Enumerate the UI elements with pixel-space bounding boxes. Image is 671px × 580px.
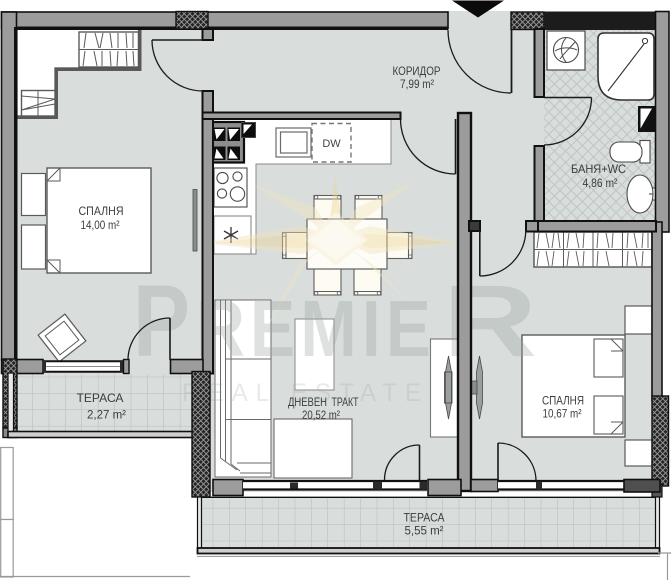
- svg-text:20,52 m²: 20,52 m²: [302, 408, 340, 422]
- svg-text:7,99 m²: 7,99 m²: [400, 77, 434, 91]
- svg-text:СПАЛНЯ: СПАЛНЯ: [79, 204, 124, 218]
- svg-text:4,86 m²: 4,86 m²: [583, 176, 618, 190]
- svg-text:ДНЕВЕН: ДНЕВЕН: [288, 395, 327, 409]
- svg-text:ТРАКТ: ТРАКТ: [332, 395, 359, 409]
- svg-text:2,27 m²: 2,27 m²: [87, 408, 126, 422]
- svg-text:14,00 m²: 14,00 m²: [81, 218, 120, 232]
- svg-text:ТЕРАСА: ТЕРАСА: [404, 511, 445, 525]
- svg-text:10,67 m²: 10,67 m²: [543, 407, 582, 421]
- svg-text:5,55 m²: 5,55 m²: [405, 524, 444, 538]
- svg-text:ТЕРАСА: ТЕРАСА: [77, 391, 124, 405]
- svg-text:DW: DW: [322, 138, 341, 150]
- svg-text:БАНЯ+WC: БАНЯ+WC: [571, 162, 626, 176]
- svg-text:REMIE: REMIE: [196, 284, 436, 373]
- svg-text:КОРИДОР: КОРИДОР: [393, 64, 441, 78]
- svg-text:СПАЛНЯ: СПАЛНЯ: [542, 394, 584, 408]
